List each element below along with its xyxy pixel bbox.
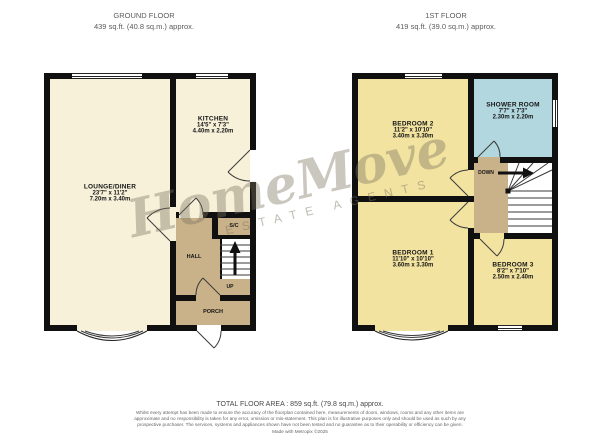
bedroom1-door-swing xyxy=(450,202,468,228)
lounge-door-swing xyxy=(147,208,170,241)
hall-label: HALL xyxy=(187,254,202,260)
disclaimer-text: Whilst every attempt has been made to en… xyxy=(128,410,473,428)
lounge-label: LOUNGE/DINER 23'7" x 11'2" 7.20m x 3.40m xyxy=(84,184,136,203)
stair-newel-post xyxy=(506,189,511,194)
first-floor-area: 419 sq.ft. (39.0 sq.m.) approx. xyxy=(336,22,556,33)
first-floor-title: 1ST FLOOR xyxy=(336,11,556,22)
floor-plan-ground: LOUNGE/DINER 23'7" x 11'2" 7.20m x 3.40m… xyxy=(44,73,256,331)
porch-label: PORCH xyxy=(203,309,223,315)
bedroom3-door-swing xyxy=(480,239,504,256)
kitchen-label: KITCHEN 14'5" x 7'3" 4.40m x 2.20m xyxy=(193,116,234,135)
shower-door-swing xyxy=(478,141,500,157)
porch-inner-door-swing xyxy=(196,278,220,295)
kitchen-door-swing xyxy=(179,198,203,215)
bedroom2-label: BEDROOM 2 11'2" x 10'10" 3.40m x 3.30m xyxy=(392,121,433,140)
sc-label: S/C xyxy=(229,223,238,229)
first-bay-window xyxy=(375,331,448,340)
shower-label: SHOWER ROOM 7'7" x 7'3" 2.30m x 2.20m xyxy=(486,102,539,121)
front-door-swing xyxy=(197,331,221,348)
floor-plan-first: BEDROOM 2 11'2" x 10'10" 3.40m x 3.30m S… xyxy=(352,73,558,331)
first-floor-header: 1ST FLOOR 419 sq.ft. (39.0 sq.m.) approx… xyxy=(336,11,556,32)
kitchen-back-door-swing xyxy=(228,150,250,181)
up-label: UP xyxy=(227,284,234,290)
bedroom1-label: BEDROOM 1 11'10" x 10'10" 3.60m x 3.30m xyxy=(392,250,434,269)
footer: TOTAL FLOOR AREA : 859 sq.ft. (79.8 sq.m… xyxy=(0,401,600,434)
down-label: DOWN xyxy=(478,170,494,176)
up-arrow xyxy=(230,241,241,275)
ground-floor-header: GROUND FLOOR 439 sq.ft. (40.8 sq.m.) app… xyxy=(34,11,254,32)
bedroom3-label: BEDROOM 3 8'2" x 7'10" 2.50m x 2.40m xyxy=(492,262,533,281)
total-floor-area: TOTAL FLOOR AREA : 859 sq.ft. (79.8 sq.m… xyxy=(0,401,600,408)
ground-floor-area: 439 sq.ft. (40.8 sq.m.) approx. xyxy=(34,22,254,33)
metropix-credit: Made with Metropix ©2025 xyxy=(0,429,600,434)
bedroom2-door-swing xyxy=(450,170,468,196)
floorplan-page: GROUND FLOOR 439 sq.ft. (40.8 sq.m.) app… xyxy=(0,0,600,443)
ground-floor-title: GROUND FLOOR xyxy=(34,11,254,22)
ground-bay-window xyxy=(77,331,147,341)
